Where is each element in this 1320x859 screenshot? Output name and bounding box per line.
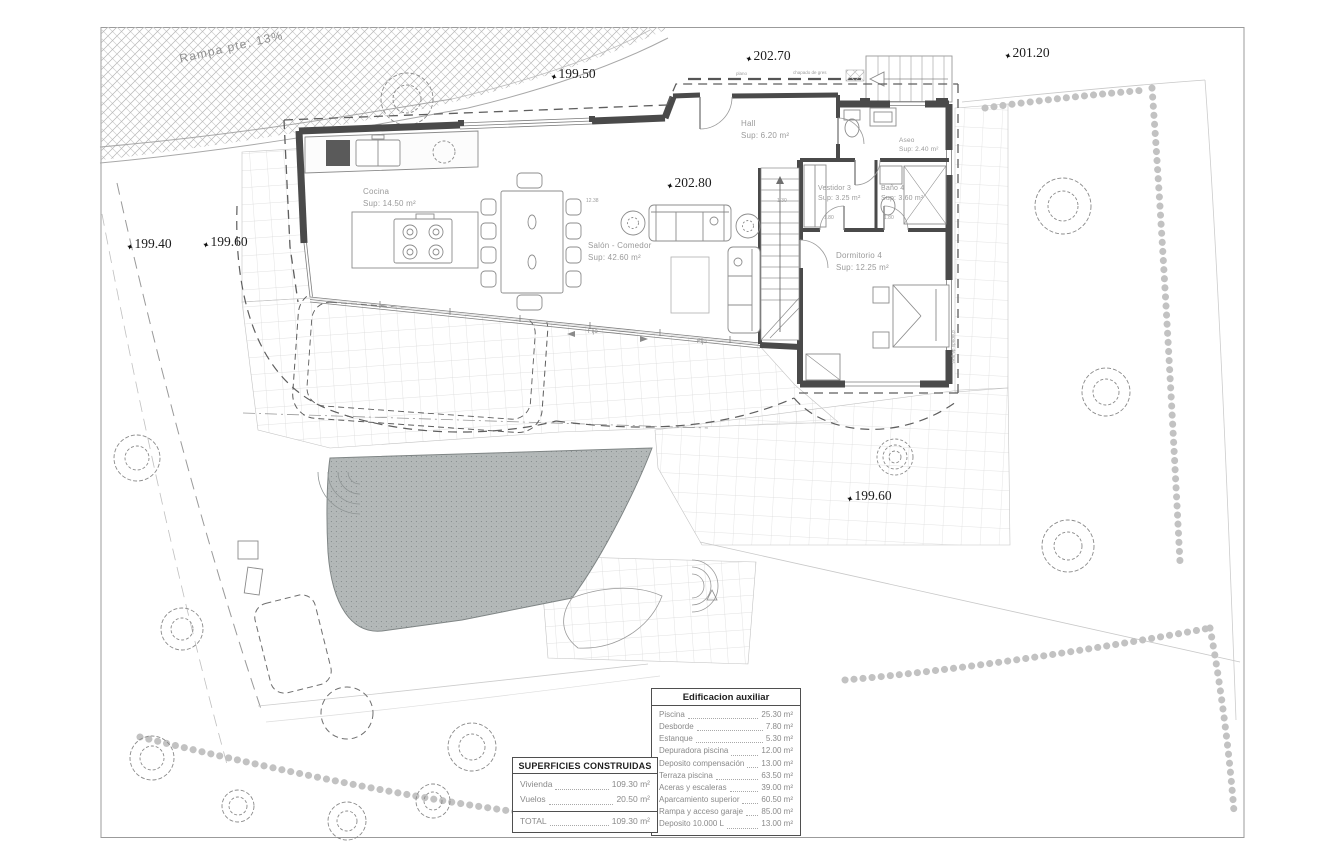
table-row: Terraza piscina63.50 m² [659,770,793,782]
floor-plan-sheet: Rampa pte: 13% ✦199.50 ✦202.70 ✦201.20 ✦… [0,0,1320,859]
level-star-icon: ✦ [549,72,559,83]
table-title: Edificacion auxiliar [652,689,800,706]
finish-label-plano: plano [736,71,747,76]
room-label-bano: Baño 4Sup: 3.60 m² [881,184,923,204]
level-marker-199-50: ✦199.50 [550,66,596,82]
level-star-icon: ✦ [201,240,211,251]
table-row: Estanque5.30 m² [659,733,793,745]
table-row: Piscina25.30 m² [659,709,793,721]
level-star-icon: ✦ [845,494,855,505]
table-row: Vivienda109.30 m² [520,777,650,792]
table-row: Vuelos20.50 m² [520,792,650,807]
room-label-vestidor: Vestidor 3Sup: 3.25 m² [818,184,860,204]
dimension-12-38: 12.38 [586,198,599,204]
finish-label-gres-right: chapado de gres [951,330,956,364]
room-label-dormitorio: Dormitorio 4Sup: 12.25 m² [836,250,889,273]
level-marker-202-70: ✦202.70 [745,48,791,64]
dimension-1-80-a: 1.80 [824,215,834,221]
window-label-fijo-2: Fijo [697,339,707,345]
dimension-1-30: 1.30 [777,198,787,204]
level-marker-199-60-mid: ✦199.60 [846,488,892,504]
level-marker-201-20: ✦201.20 [1004,45,1050,61]
table-row: Aceras y escaleras39.00 m² [659,782,793,794]
table-row: Deposito 10.000 L13.00 m² [659,818,793,830]
level-star-icon: ✦ [1003,51,1013,62]
level-star-icon: ✦ [665,181,675,192]
table-title: SUPERFICIES CONSTRUIDAS [513,758,657,774]
dimension-1-80-b: 1.80 [884,215,894,221]
window-label-fijo-1: Fijo [588,329,598,335]
room-label-hall: HallSup: 6.20 m² [741,118,789,141]
table-row: Aparcamiento superior60.50 m² [659,794,793,806]
table-total-row: TOTAL109.30 m² [520,815,650,828]
level-star-icon: ✦ [744,54,754,65]
level-star-icon: ✦ [125,242,135,253]
room-label-salon: Salón - ComedorSup: 42.60 m² [588,240,651,263]
table-row: Depuradora piscina12.00 m² [659,745,793,757]
finish-label-gres-top: chapado de gres [793,70,827,75]
table-row: Deposito compensación13.00 m² [659,758,793,770]
room-label-cocina: CocinaSup: 14.50 m² [363,186,416,209]
level-marker-202-80: ✦202.80 [666,175,712,191]
table-row: Rampa y acceso garaje85.00 m² [659,806,793,818]
level-marker-199-60-top: ✦199.60 [202,234,248,250]
interior-stair [761,168,799,340]
table-edificacion-auxiliar: Edificacion auxiliar Piscina25.30 m² Des… [651,688,801,836]
table-row: Desborde7.80 m² [659,721,793,733]
table-superficies-construidas: SUPERFICIES CONSTRUIDAS Vivienda109.30 m… [512,757,658,833]
room-label-aseo: AseoSup: 2.40 m² [899,136,939,155]
level-marker-199-40: ✦199.40 [126,236,172,252]
